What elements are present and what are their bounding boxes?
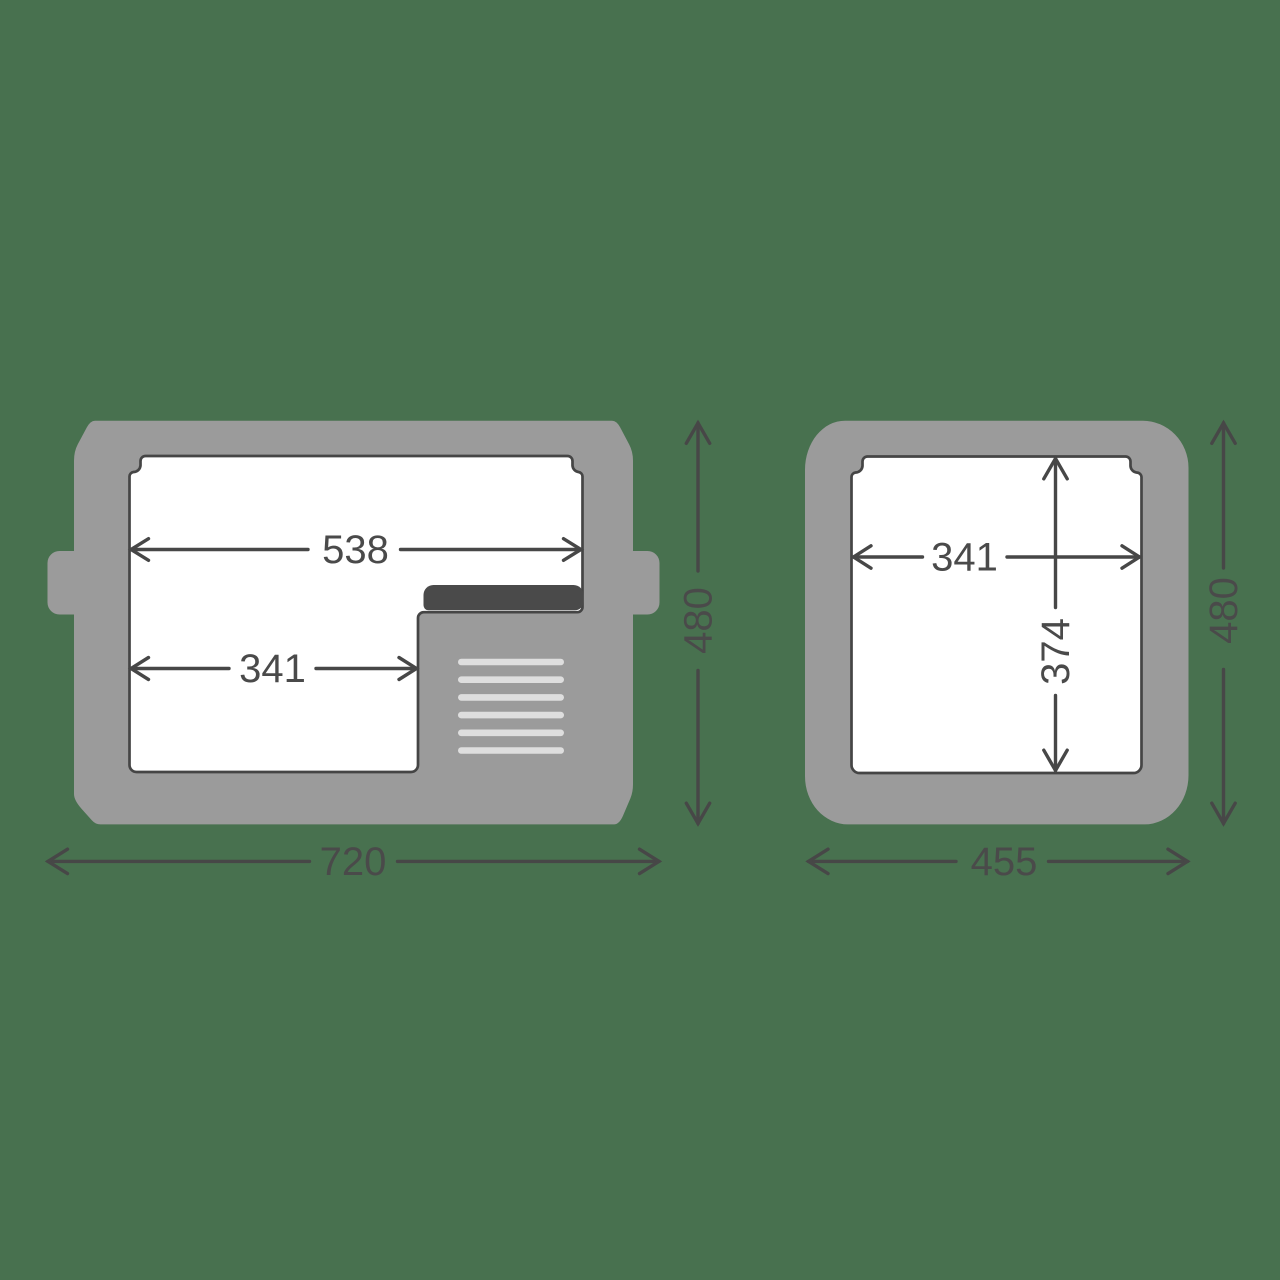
svg-text:455: 455 <box>971 840 1038 884</box>
svg-text:480: 480 <box>1202 577 1246 644</box>
svg-text:480: 480 <box>677 587 721 654</box>
svg-text:341: 341 <box>239 647 306 691</box>
svg-text:538: 538 <box>322 528 389 572</box>
svg-text:374: 374 <box>1034 618 1078 685</box>
svg-text:720: 720 <box>320 840 387 884</box>
svg-text:341: 341 <box>931 536 998 580</box>
